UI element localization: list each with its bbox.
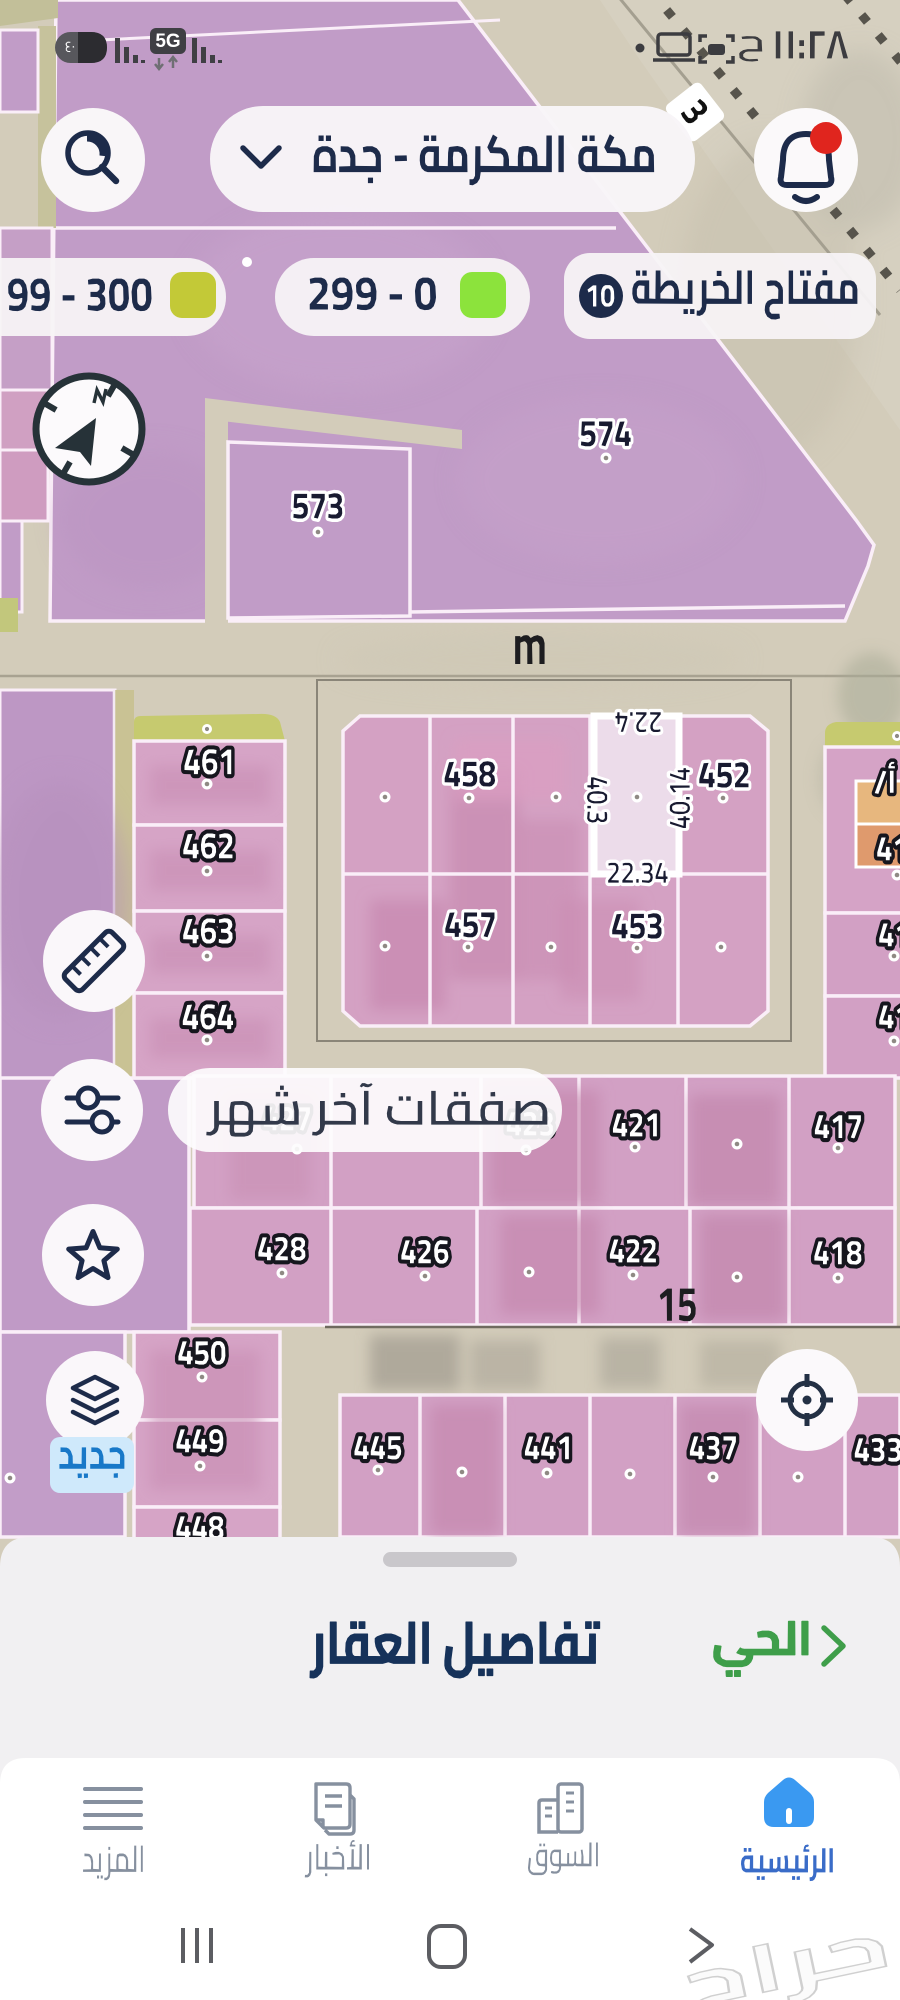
svg-text:5G: 5G — [155, 31, 180, 52]
